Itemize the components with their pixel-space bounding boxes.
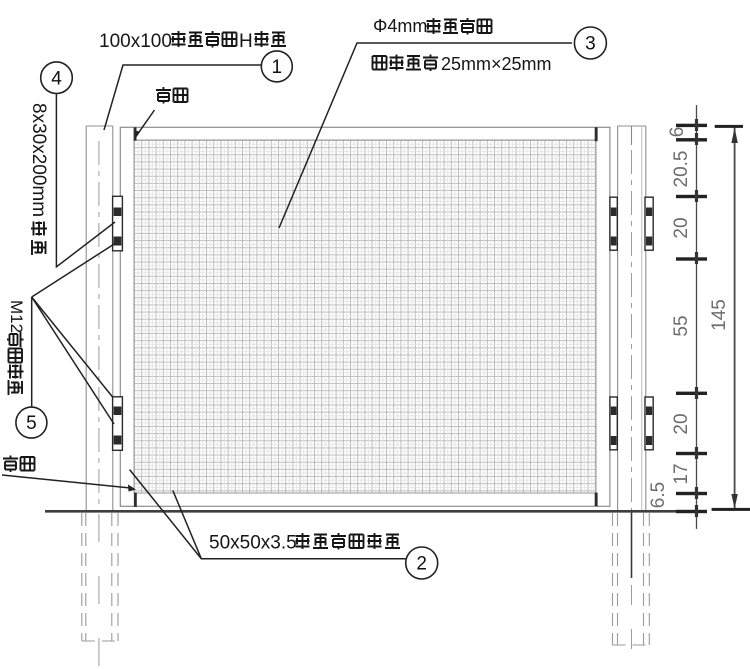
- svg-text:55: 55: [671, 315, 692, 336]
- svg-text:8x30x200mm: 8x30x200mm: [28, 103, 49, 217]
- svg-text:6.5: 6.5: [648, 482, 669, 508]
- svg-text:5: 5: [26, 413, 37, 434]
- svg-text:20: 20: [671, 413, 692, 434]
- svg-text:1: 1: [272, 57, 283, 78]
- svg-text:M12: M12: [7, 300, 26, 333]
- svg-text:H: H: [239, 31, 253, 52]
- svg-text:20: 20: [671, 217, 692, 238]
- svg-text:17: 17: [671, 463, 692, 484]
- svg-text:6: 6: [667, 127, 688, 138]
- svg-text:Φ4mm: Φ4mm: [373, 16, 427, 36]
- svg-text:3: 3: [585, 34, 596, 55]
- svg-text:25mm×25mm: 25mm×25mm: [441, 54, 552, 74]
- svg-text:50x50x3.5: 50x50x3.5: [209, 533, 297, 554]
- svg-text:4: 4: [51, 68, 62, 89]
- svg-text:20.5: 20.5: [671, 151, 692, 188]
- svg-text:2: 2: [416, 554, 427, 575]
- svg-text:145: 145: [709, 299, 730, 331]
- svg-text:100x100: 100x100: [99, 31, 172, 52]
